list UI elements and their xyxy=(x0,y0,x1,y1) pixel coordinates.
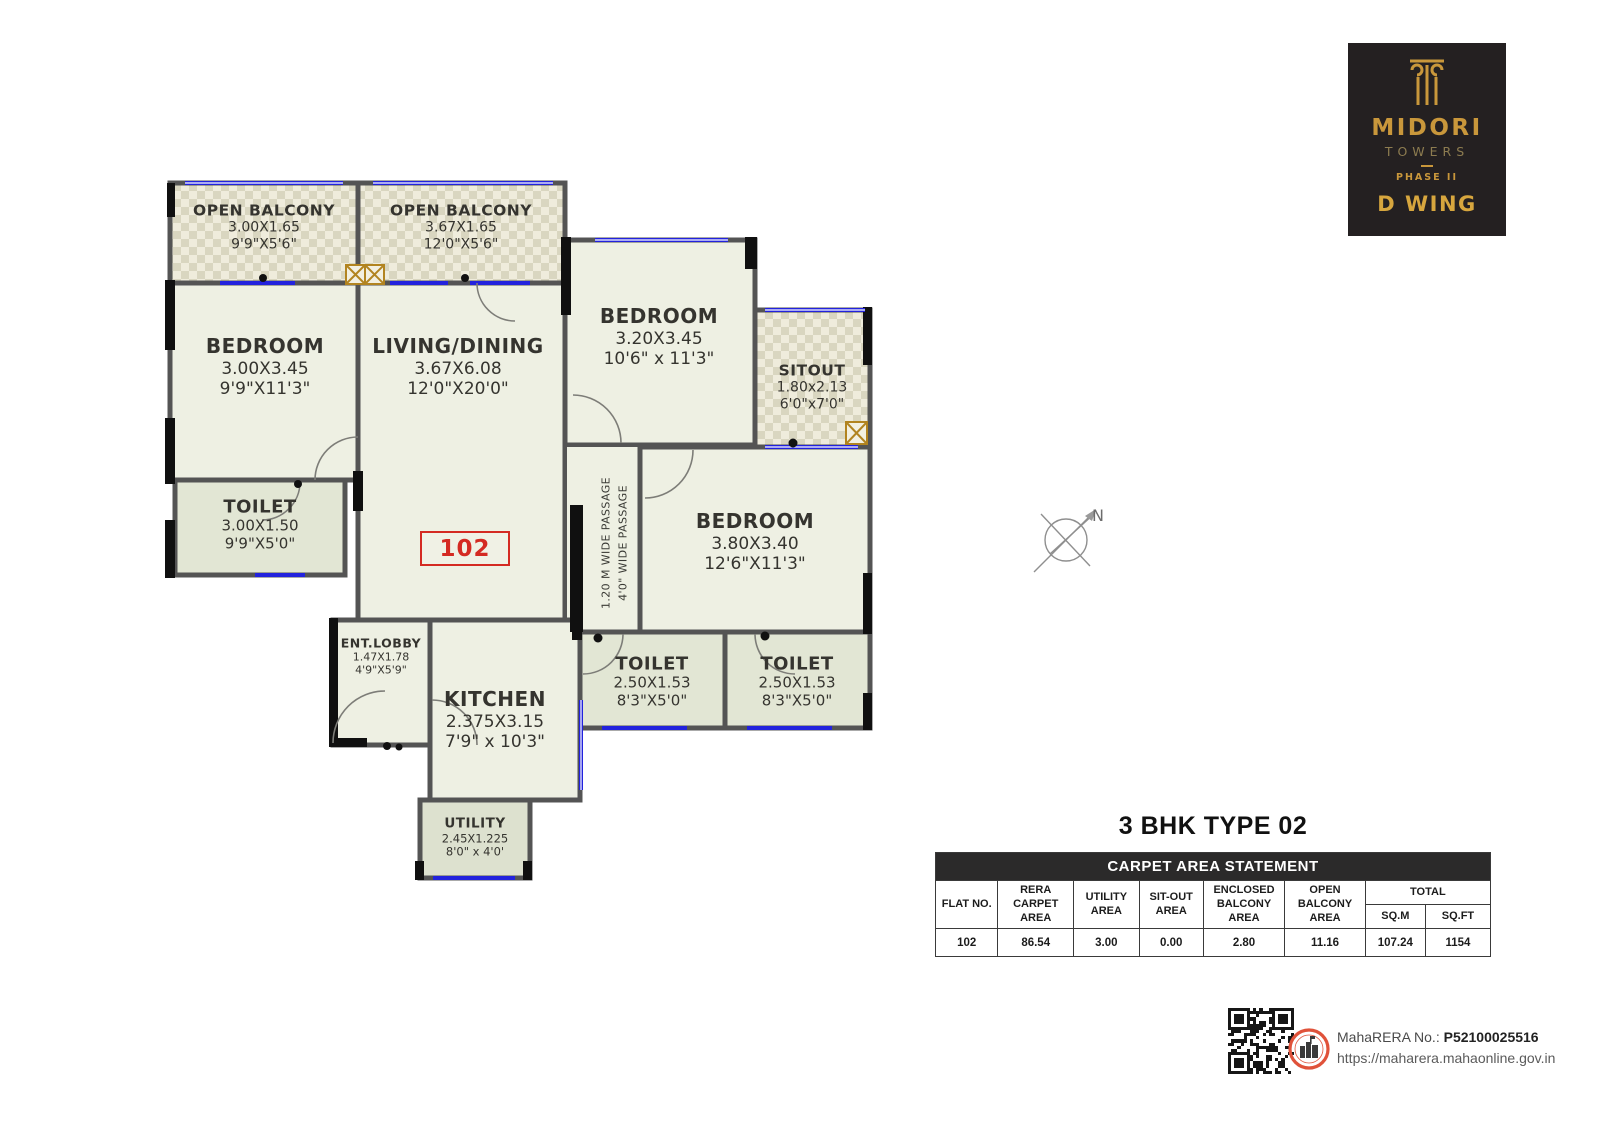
flat-number-badge: 102 xyxy=(420,531,510,566)
room-label-toilet-2: TOILET 2.50X1.53 8'3"X5'0" xyxy=(613,654,690,711)
maharera-number: P52100025516 xyxy=(1444,1029,1539,1045)
brand-name: MIDORI xyxy=(1371,115,1482,141)
col-sqft: SQ.FT xyxy=(1425,905,1490,929)
room-label-kitchen: KITCHEN 2.375X3.15 7'9" x 10'3" xyxy=(444,688,546,752)
cell-rera: 86.54 xyxy=(998,929,1074,957)
cell-flat: 102 xyxy=(936,929,998,957)
room-label-open-balcony-2: OPEN BALCONY 3.67X1.65 12'0"X5'6" xyxy=(390,201,532,252)
cell-sitout: 0.00 xyxy=(1139,929,1203,957)
passage-label: 1.20 M WIDE PASSAGE 4'0" WIDE PASSAGE xyxy=(599,477,632,609)
maharera-info: MahaRERA No.: P52100025516 https://mahar… xyxy=(1337,1027,1555,1069)
brand-divider xyxy=(1421,165,1433,167)
carpet-area-table: CARPET AREA STATEMENT FLAT NO. RERA CARP… xyxy=(935,852,1491,957)
brand-phase: PHASE II xyxy=(1396,172,1458,183)
brochure-page: OPEN BALCONY 3.00X1.65 9'9"X5'6" OPEN BA… xyxy=(0,0,1599,1130)
room-label-toilet-3: TOILET 2.50X1.53 8'3"X5'0" xyxy=(758,654,835,711)
table-row: 102 86.54 3.00 0.00 2.80 11.16 107.24 11… xyxy=(936,929,1491,957)
brand-logo-panel: MIDORI TOWERS PHASE II D WING xyxy=(1348,43,1506,236)
col-rera: RERA CARPET AREA xyxy=(998,881,1074,929)
room-label-open-balcony-1: OPEN BALCONY 3.00X1.65 9'9"X5'6" xyxy=(193,201,335,252)
brand-sub: TOWERS xyxy=(1385,144,1469,159)
maharera-url: https://maharera.mahaonline.gov.in xyxy=(1337,1048,1555,1069)
col-flat-no: FLAT NO. xyxy=(936,881,998,929)
room-label-bedroom-2: BEDROOM 3.20X3.45 10'6" x 11'3" xyxy=(600,305,718,369)
wing-label: D WING xyxy=(1377,192,1477,216)
table-title: CARPET AREA STATEMENT xyxy=(936,853,1491,881)
col-utility: UTILITY AREA xyxy=(1073,881,1139,929)
cell-sqft: 1154 xyxy=(1425,929,1490,957)
cell-encl: 2.80 xyxy=(1203,929,1285,957)
room-label-utility: UTILITY 2.45X1.225 8'0" x 4'0' xyxy=(442,816,508,859)
room-label-toilet-1: TOILET 3.00X1.50 9'9"X5'0" xyxy=(221,497,298,554)
col-enclosed: ENCLOSED BALCONY AREA xyxy=(1203,881,1285,929)
cell-utility: 3.00 xyxy=(1073,929,1139,957)
col-sitout: SIT-OUT AREA xyxy=(1139,881,1203,929)
room-label-bedroom-1: BEDROOM 3.00X3.45 9'9"X11'3" xyxy=(206,335,324,399)
col-total: TOTAL xyxy=(1365,881,1490,905)
room-label-living-dining: LIVING/DINING 3.67X6.08 12'0"X20'0" xyxy=(372,335,543,399)
room-label-ent-lobby: ENT.LOBBY 1.47X1.78 4'9"X5'9" xyxy=(341,637,421,678)
col-open: OPEN BALCONY AREA xyxy=(1285,881,1365,929)
col-sqm: SQ.M xyxy=(1365,905,1425,929)
room-label-sitout: SITOUT 1.80x2.13 6'0"x7'0" xyxy=(777,361,848,412)
compass-north-label: N xyxy=(1092,506,1104,525)
maharera-seal-icon xyxy=(1286,1026,1332,1072)
floor-plan: OPEN BALCONY 3.00X1.65 9'9"X5'6" OPEN BA… xyxy=(165,175,877,885)
column-logo-icon xyxy=(1398,57,1456,109)
unit-type-title: 3 BHK TYPE 02 xyxy=(935,812,1491,841)
maharera-number-line: MahaRERA No.: P52100025516 xyxy=(1337,1027,1555,1048)
room-label-bedroom-3: BEDROOM 3.80X3.40 12'6"X11'3" xyxy=(696,510,814,574)
cell-open: 11.16 xyxy=(1285,929,1365,957)
qr-code xyxy=(1228,1008,1294,1074)
cell-sqm: 107.24 xyxy=(1365,929,1425,957)
